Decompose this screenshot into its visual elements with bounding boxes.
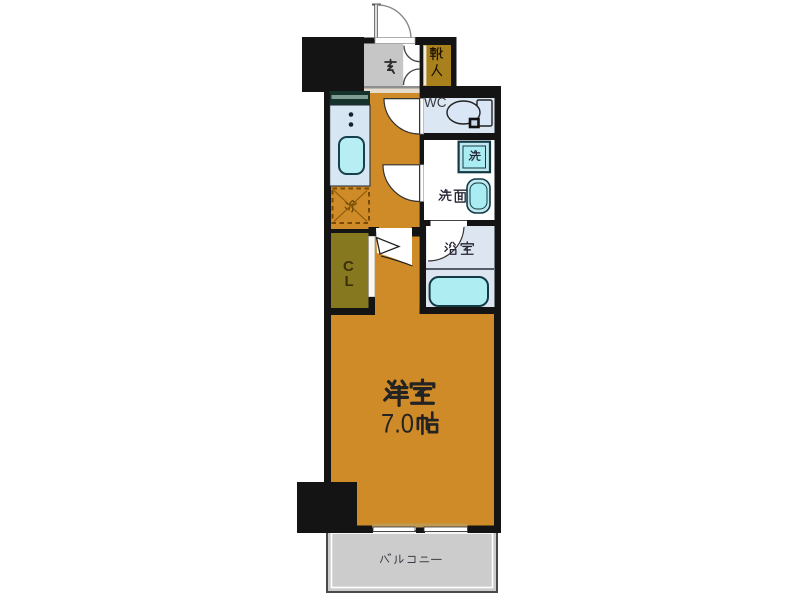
svg-text:WC: WC <box>424 95 447 110</box>
svg-text:L: L <box>345 273 354 290</box>
svg-text:7.0: 7.0 <box>381 409 414 439</box>
